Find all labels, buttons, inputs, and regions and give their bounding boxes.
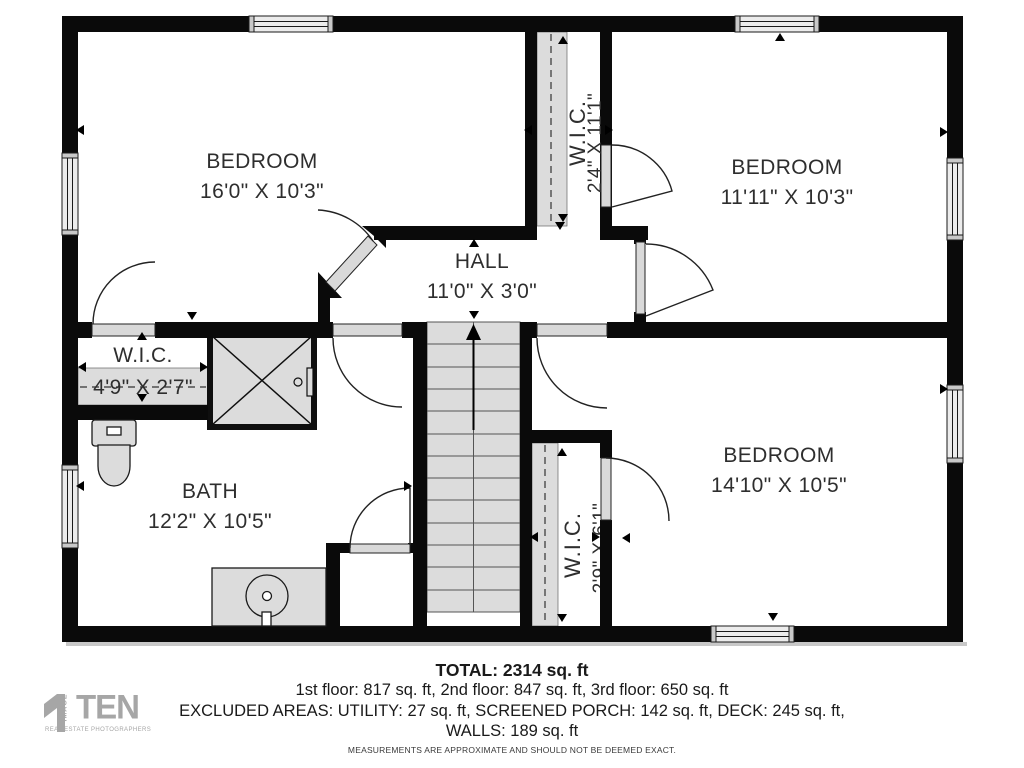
logo-brand-text: TEN [76, 687, 139, 727]
wall-exterior-bottom [62, 626, 963, 642]
total-area-text: TOTAL: 2314 sq. ft [0, 660, 1024, 681]
closet-band-top-wic [537, 32, 567, 226]
door-arc-bedroom1 [318, 210, 373, 241]
room-label-bedroom-2: BEDROOM 11'11" X 10'3" [637, 153, 937, 213]
window-left-upper [62, 153, 78, 235]
wall-exterior-right [947, 16, 963, 642]
room-name: W.I.C. [58, 340, 228, 372]
logo-tagline-text: REAL ESTATE PHOTOGRAPHERS [45, 727, 155, 733]
room-dims: 11'0" X 3'0" [362, 277, 602, 307]
wall-exterior-top [62, 16, 963, 32]
room-dims: 12'2" X 10'5" [85, 507, 335, 537]
window-bottom [711, 626, 794, 642]
door-sill-bedroom3 [537, 324, 607, 336]
staircase [427, 322, 520, 612]
door-sill-wic-bottom [601, 458, 611, 520]
window-left-lower [62, 465, 78, 548]
room-label-bath: BATH 12'2" X 10'5" [85, 477, 335, 537]
room-label-bedroom-1: BEDROOM 16'0" X 10'3" [112, 147, 412, 207]
room-name: BEDROOM [629, 441, 929, 471]
door-sill-bedroom2 [636, 242, 645, 314]
room-dims: 16'0" X 10'3" [112, 177, 412, 207]
ten-image-logo: IMAGE TEN REAL ESTATE PHOTOGRAPHERS [40, 688, 170, 744]
room-label-wic-bottom: W.I.C. [560, 512, 585, 578]
door-sill-wic-left [92, 324, 155, 336]
room-dims-wic-top: 2'4" X 11'1" [585, 93, 606, 193]
room-name: HALL [362, 247, 602, 277]
door-arc-wic-left [93, 262, 155, 324]
door-arc-bedroom3 [537, 338, 607, 408]
door-arc-bedroom2 [646, 244, 713, 316]
room-name: BEDROOM [112, 147, 412, 177]
room-label-wic-left: W.I.C. 4'9" X 2'7" [58, 340, 228, 404]
valve-handle-icon [307, 368, 313, 396]
disclaimer-text: MEASUREMENTS ARE APPROXIMATE AND SHOULD … [0, 745, 1024, 755]
window-top-left [249, 16, 333, 32]
window-right-lower [947, 385, 963, 463]
room-label-bedroom-3: BEDROOM 14'10" X 10'5" [629, 441, 929, 501]
room-name: BATH [85, 477, 335, 507]
door-arc-hall-vestibule [333, 338, 402, 407]
window-right-upper [947, 158, 963, 240]
vanity-sink-icon [212, 568, 326, 626]
plan-shadow [66, 642, 967, 646]
room-label-hall: HALL 11'0" X 3'0" [362, 247, 602, 307]
room-dims: 14'10" X 10'5" [629, 471, 929, 501]
door-sill-bath [350, 544, 410, 553]
door-arc-bath [350, 488, 410, 548]
door-sill-hall-vestibule [333, 324, 402, 336]
room-dims: 4'9" X 2'7" [58, 372, 228, 404]
room-dims: 11'11" X 10'3" [637, 183, 937, 213]
floorplan-page: 2'9" X 6'1" [0, 0, 1024, 768]
room-name: BEDROOM [637, 153, 937, 183]
logo-image-text: IMAGE [62, 691, 69, 725]
window-top-right [735, 16, 819, 32]
